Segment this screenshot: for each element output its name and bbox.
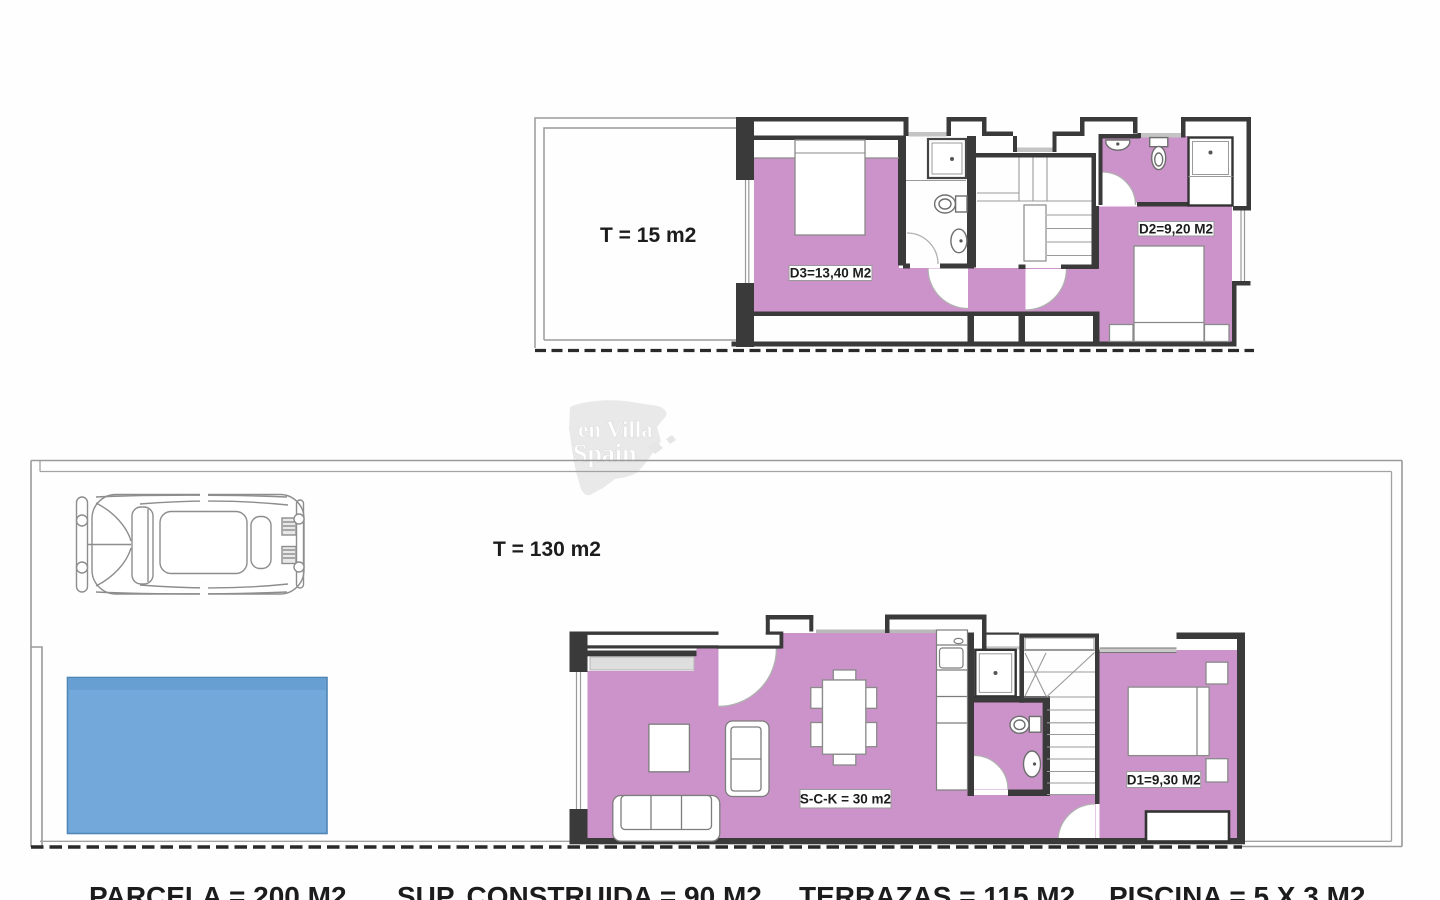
svg-text:TERRAZAS = 115 M2: TERRAZAS = 115 M2	[799, 881, 1075, 900]
svg-text:Spain: Spain	[573, 439, 637, 468]
svg-text:SUP. CONSTRUIDA = 90 M2: SUP. CONSTRUIDA = 90 M2	[397, 881, 762, 900]
svg-text:D3=13,40 M2: D3=13,40 M2	[790, 266, 871, 281]
svg-text:D1=9,30 M2: D1=9,30 M2	[1127, 772, 1201, 787]
svg-text:T = 15 m2: T = 15 m2	[600, 224, 696, 247]
svg-text:D2=9,20 M2: D2=9,20 M2	[1139, 221, 1213, 236]
svg-text:S-C-K = 30 m2: S-C-K = 30 m2	[800, 792, 891, 807]
svg-text:PARCELA = 200 M2: PARCELA = 200 M2	[89, 881, 347, 900]
svg-text:PISCINA = 5 X 3 M2: PISCINA = 5 X 3 M2	[1109, 881, 1366, 900]
svg-text:T = 130 m2: T = 130 m2	[493, 538, 601, 561]
